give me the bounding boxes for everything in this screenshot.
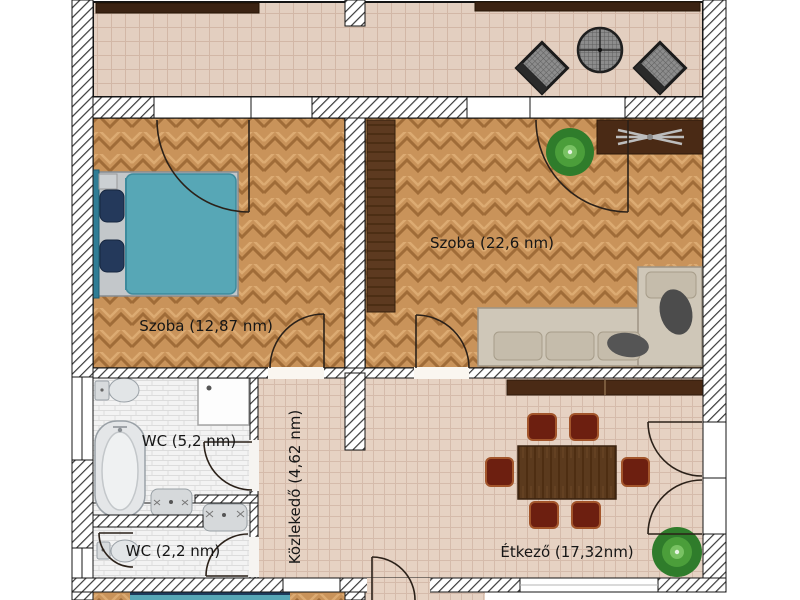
label-bedroom: Szoba (12,87 nm) — [139, 317, 273, 335]
wall-left — [72, 0, 93, 600]
label-wc: WC (2,2 nm) — [126, 542, 221, 560]
double-bed — [90, 170, 238, 298]
wall-bath-wc — [93, 515, 203, 527]
label-dining-room: Étkező (17,32nm) — [500, 543, 633, 561]
terrace-table — [578, 28, 622, 72]
wall-terrace-column — [345, 0, 365, 26]
wall-bath-wc-step — [195, 495, 258, 503]
plan-structure — [0, 0, 800, 600]
opening-entry — [367, 578, 430, 600]
window-living-terrace — [467, 97, 625, 118]
opening-living-dining — [414, 367, 469, 379]
dining-chair — [528, 414, 556, 440]
wardrobe — [367, 120, 395, 312]
sink-wc — [203, 504, 247, 531]
wall-rooms-bottom — [93, 368, 703, 378]
cabinet-with-fan — [597, 120, 703, 154]
window-bedroom-terrace — [154, 97, 312, 118]
wall-hall-stub — [345, 373, 365, 450]
bathtub — [95, 421, 145, 517]
dining-chair — [486, 458, 513, 486]
shower — [198, 378, 249, 425]
terrace-railing-right — [475, 2, 700, 11]
label-bathroom: WC (5,2 nm) — [142, 432, 237, 450]
label-hallway: Közlekedő (4,62 nm) — [286, 410, 304, 564]
label-living-room: Szoba (22,6 nm) — [430, 234, 554, 252]
bed-pillow — [100, 240, 124, 272]
window-bottom-left — [283, 578, 340, 592]
sideboard — [507, 380, 703, 395]
dining-chair — [530, 502, 558, 528]
wall-bedroom-living — [345, 118, 365, 368]
nightstand — [99, 174, 117, 189]
dining-table — [518, 446, 616, 499]
sink-bathroom — [151, 489, 192, 516]
dining-chair — [572, 502, 600, 528]
floor-plan: Szoba (12,87 nm) Szoba (22,6 nm) WC (5,2… — [0, 0, 800, 600]
toilet-bathroom — [95, 378, 139, 402]
opening-bathroom-door — [249, 440, 259, 491]
opening-bedroom-hall — [268, 367, 324, 379]
bed-blanket — [126, 174, 236, 294]
wall-bottom-stub — [345, 592, 365, 600]
opening-wc-door — [249, 537, 259, 577]
plant-living — [546, 128, 594, 176]
dining-chair — [622, 458, 649, 486]
terrace-railing-left — [96, 3, 259, 13]
bed-pillow — [100, 190, 124, 222]
dining-chair — [570, 414, 598, 440]
